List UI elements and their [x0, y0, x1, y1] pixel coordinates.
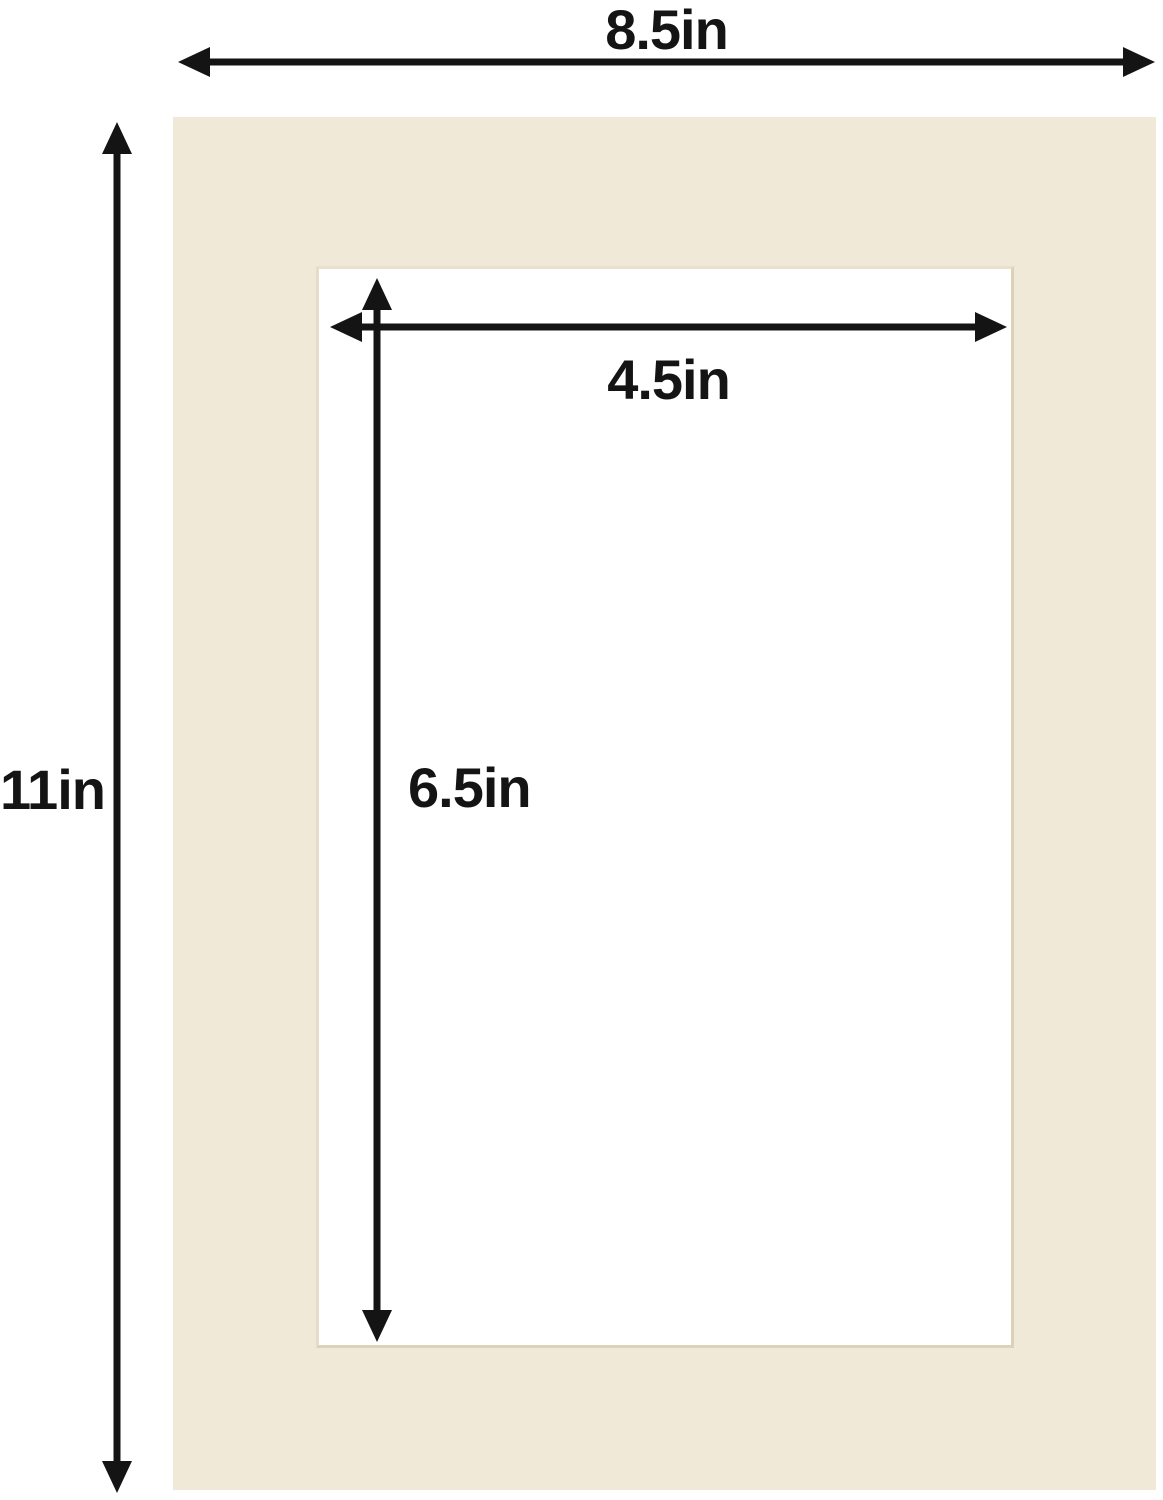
opening-width-label: 4.5in — [330, 352, 1007, 408]
arrow-line — [114, 146, 121, 1469]
outer-width-label: 8.5in — [178, 2, 1155, 58]
outer-height-label: 11in — [0, 762, 102, 818]
mat-dimension-diagram: 8.5in 11in 4.5in 6.5in — [0, 0, 1163, 1500]
outer-height-arrow — [102, 122, 132, 1493]
arrowhead-down-icon — [102, 1461, 132, 1493]
arrowhead-up-icon — [102, 122, 132, 154]
opening-height-label: 6.5in — [408, 760, 531, 816]
